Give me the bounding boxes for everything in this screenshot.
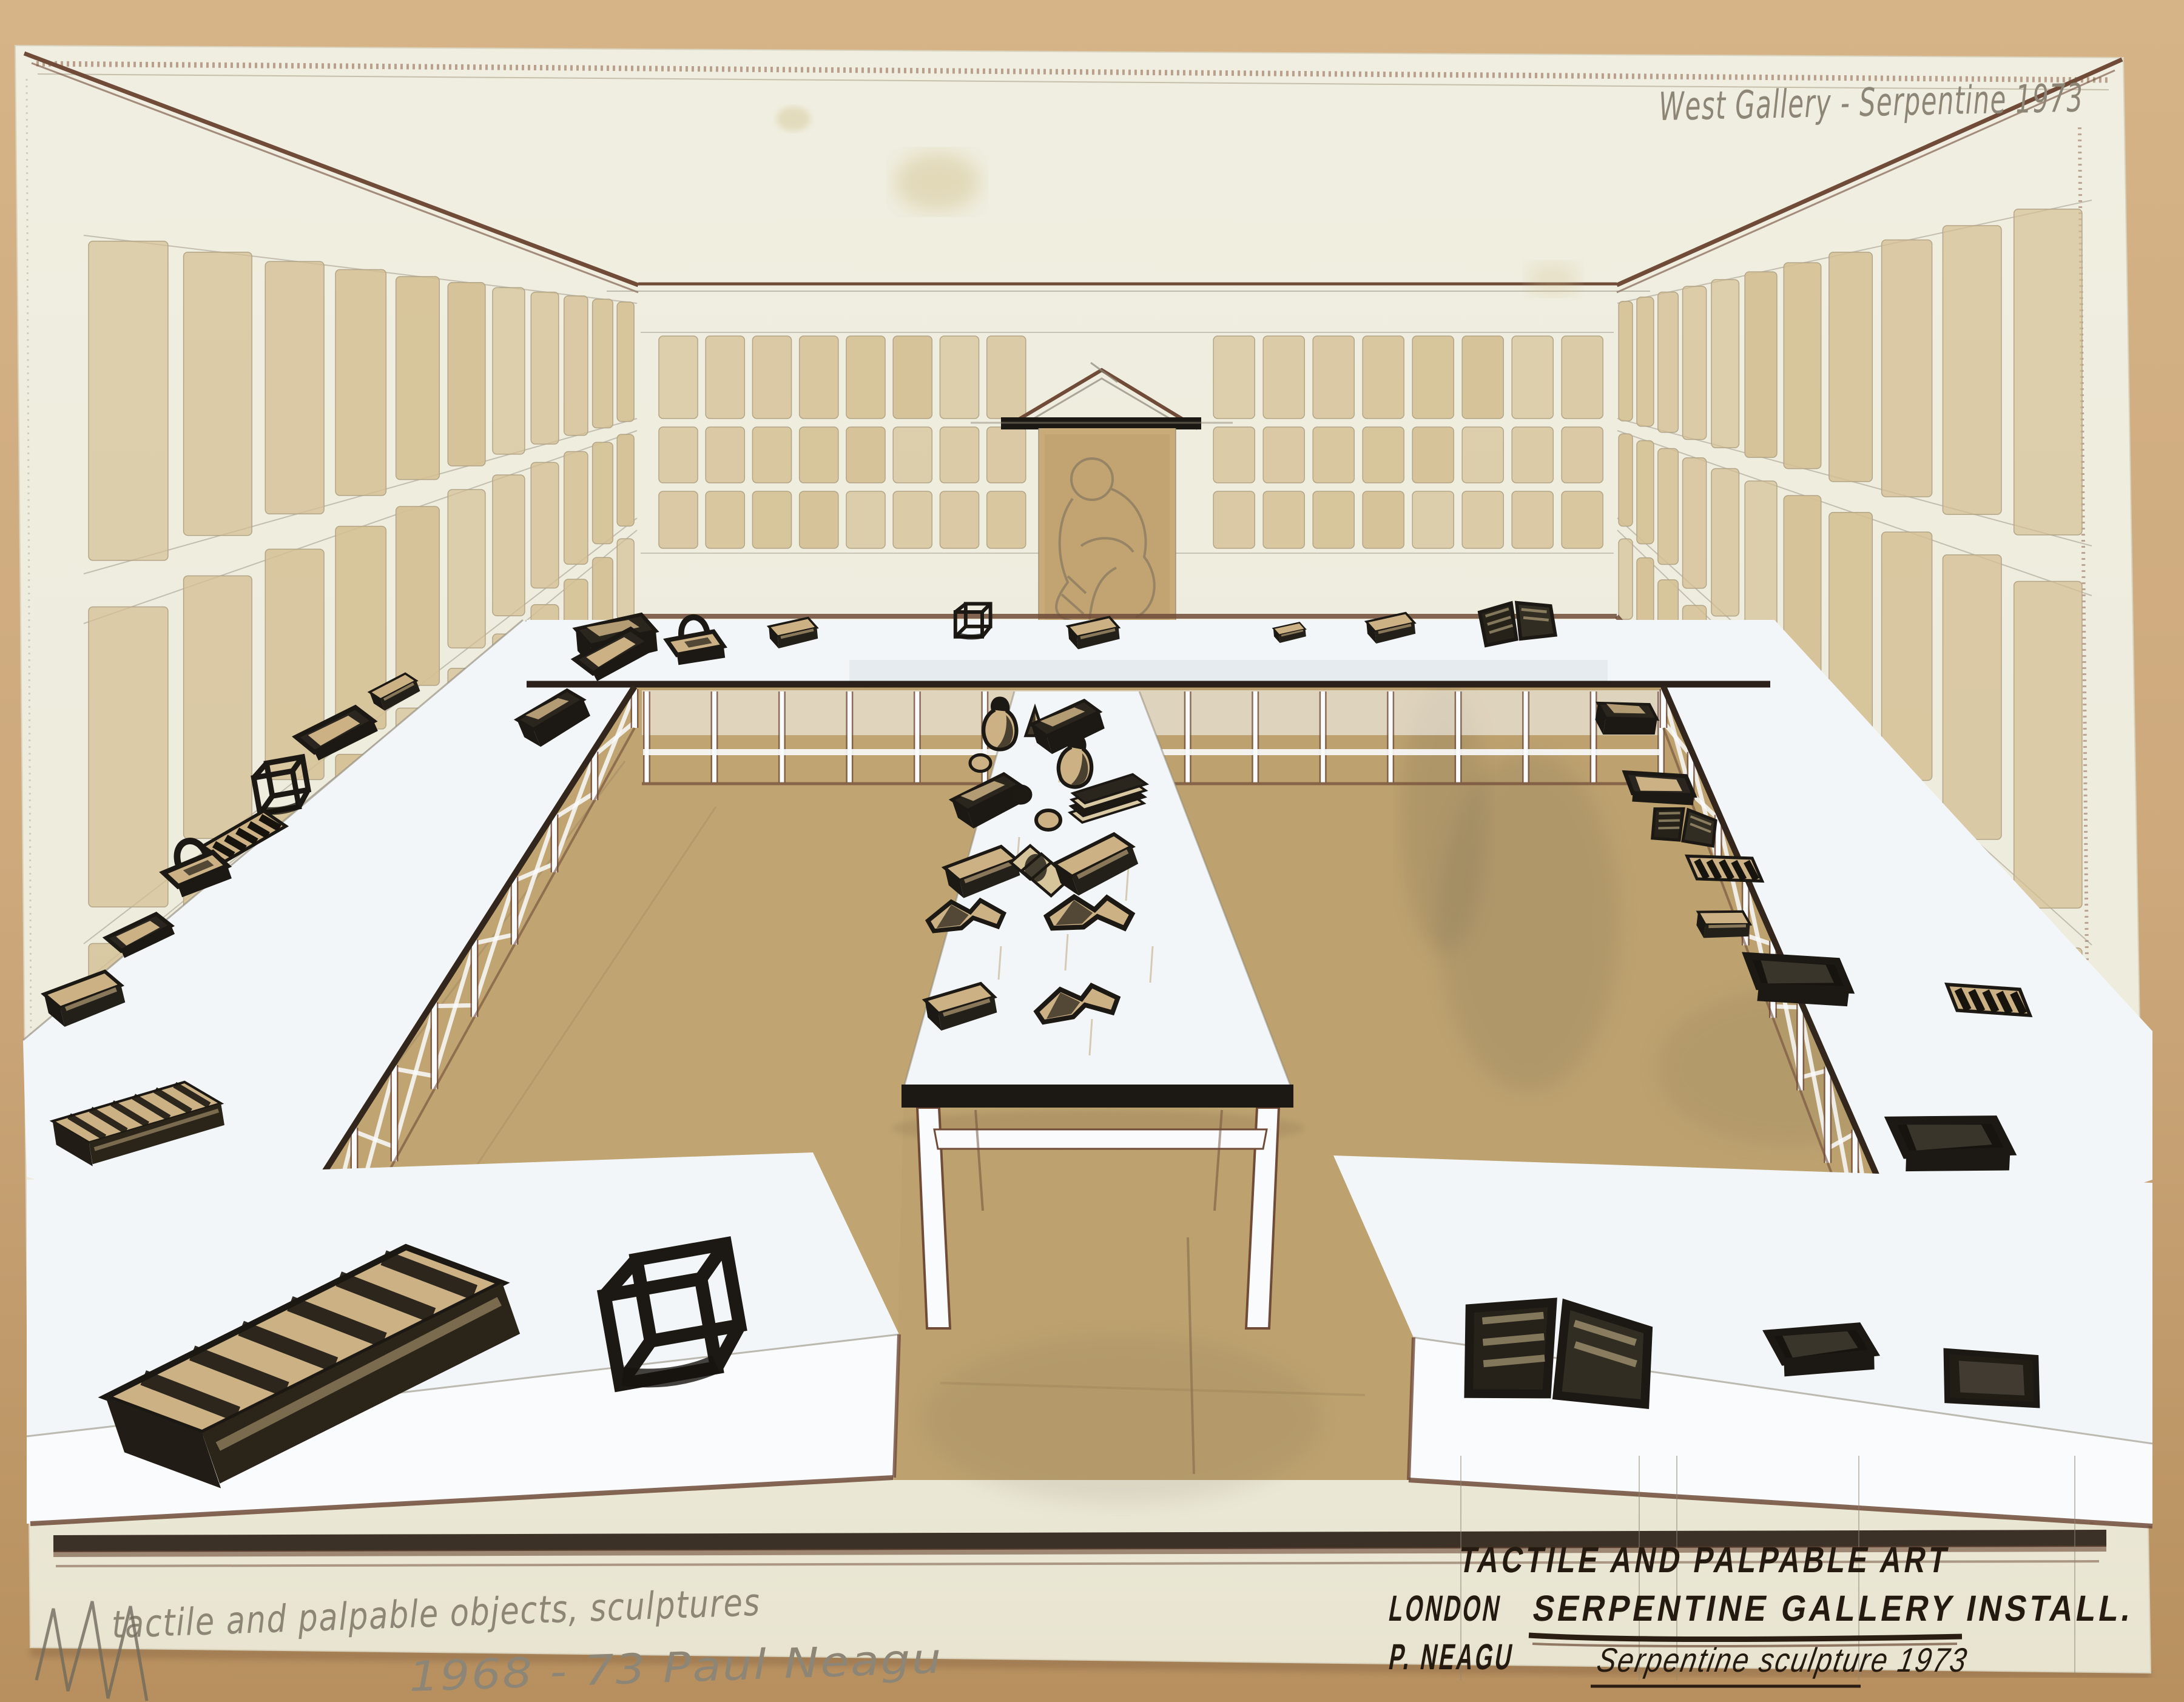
wall-panel [564, 452, 588, 565]
caption-ink-artist: P. NEAGU [1386, 1636, 1518, 1677]
wall-panel [893, 491, 932, 548]
wall-panel [1213, 336, 1255, 419]
sculpture-oval [970, 755, 991, 771]
wall-panel [1512, 427, 1553, 483]
sculpture-dark-panel [1940, 1345, 2043, 1413]
wall-panel [1462, 491, 1503, 548]
wall-panel [800, 336, 838, 419]
wall-panel [752, 427, 791, 483]
wall-panel [987, 427, 1026, 483]
wall-panel [593, 299, 613, 428]
wall-panel [2014, 581, 2082, 908]
wall-panel [1462, 336, 1503, 419]
caption-ink-title: TACTILE AND PALPABLE ART [1456, 1539, 1953, 1579]
wall-panel [2014, 209, 2082, 535]
wall-panel [1637, 297, 1654, 426]
truss-brace [1773, 1006, 1800, 1007]
wall-panel [564, 296, 588, 436]
wall-panel [448, 283, 485, 466]
wall-panel [1683, 458, 1707, 588]
wall-panel [1512, 336, 1553, 419]
wall-panel [1683, 286, 1707, 440]
framed-artwork: West Gallery - Serpentine 1973 tactile a… [0, 0, 2184, 1702]
wall-panel [1784, 263, 1821, 468]
wall-panel [1562, 336, 1603, 419]
wall-panel [1263, 336, 1304, 419]
wall-panel [617, 302, 634, 422]
wall-panel [1829, 252, 1872, 482]
wall-panel [1943, 226, 2001, 514]
wall-panel [1363, 427, 1404, 483]
wall-panel [706, 491, 744, 548]
wall-panel [448, 489, 485, 648]
wall-panel [617, 539, 634, 619]
wall-panel [89, 607, 168, 907]
wall-panel [617, 434, 634, 526]
wall-panel [893, 336, 932, 419]
wall-panel [1658, 449, 1678, 565]
wall-panel [1363, 336, 1404, 419]
wall-panel [493, 475, 525, 616]
wall-panel [1943, 555, 2001, 839]
wall-panel [940, 427, 979, 483]
wall-panel [1619, 539, 1633, 619]
wall-panel [987, 491, 1026, 548]
wall-panel [1213, 491, 1255, 548]
title-top-right: West Gallery - Serpentine 1973 [1659, 76, 2084, 130]
wall-panel [659, 336, 698, 419]
wall-panel [1313, 336, 1354, 419]
wall-panel [1658, 292, 1678, 432]
wall-panel [659, 427, 698, 483]
caption-ink-subtitle: Serpentine sculpture 1973 [1594, 1641, 1971, 1679]
wall-panel [1213, 427, 1255, 483]
wall-panel [1313, 491, 1354, 548]
wall-panel [1412, 491, 1454, 548]
wall-panel [335, 270, 386, 496]
wall-panel [752, 336, 791, 419]
wall-panel [846, 427, 885, 483]
wall-panel [1412, 427, 1454, 483]
truss-brace [434, 1005, 474, 1006]
wall-panel [184, 252, 252, 536]
wall-panel [1619, 434, 1633, 526]
wall-panel [1711, 468, 1739, 616]
wall-panel [1882, 532, 1932, 780]
wall-panel [846, 491, 885, 548]
wall-panel [1363, 491, 1404, 548]
wall-panel [706, 336, 744, 419]
wall-panel [493, 288, 525, 454]
wall-panel [1619, 301, 1633, 421]
wall-panel [531, 292, 559, 445]
sculpture-dark-knob [1010, 786, 1031, 804]
caption-ink-city: LONDON [1386, 1587, 1506, 1628]
wall-panel [893, 427, 932, 483]
wall-panel [940, 336, 979, 419]
wall-panel [940, 491, 979, 548]
wall-panel [593, 442, 613, 543]
wall-panel [800, 427, 838, 483]
wall-panel [752, 491, 791, 548]
wall-panel [706, 427, 744, 483]
installation-drawing: West Gallery - Serpentine 1973 tactile a… [0, 0, 2184, 1702]
caption-ink-gallery: SERPENTINE GALLERY INSTALL. [1530, 1587, 2138, 1628]
wall-panel [184, 576, 252, 838]
wall-panel [1562, 491, 1603, 548]
wall-panel [531, 462, 559, 588]
wall-panel [396, 506, 440, 685]
wall-panel [1263, 427, 1304, 483]
sculpture-disc [1036, 810, 1060, 830]
wall-panel [1562, 427, 1603, 483]
wall-panel [1462, 427, 1503, 483]
wall-panel [1637, 440, 1654, 543]
wall-panel [800, 491, 838, 548]
wall-panel [1263, 491, 1304, 548]
wall-panel [1412, 336, 1454, 419]
runway-front-bar [902, 1085, 1293, 1108]
wall-panel [987, 336, 1026, 419]
wall-panel [89, 241, 168, 560]
wall-panel [1512, 491, 1553, 548]
wall-panel [1313, 427, 1354, 483]
wall-panel [846, 336, 885, 419]
wall-panel [1745, 272, 1777, 457]
wall-panel [1711, 280, 1739, 448]
wall-panel [1882, 240, 1932, 497]
wall-panel [265, 261, 324, 514]
wall-panel [396, 277, 440, 480]
wall-panel [659, 491, 698, 548]
